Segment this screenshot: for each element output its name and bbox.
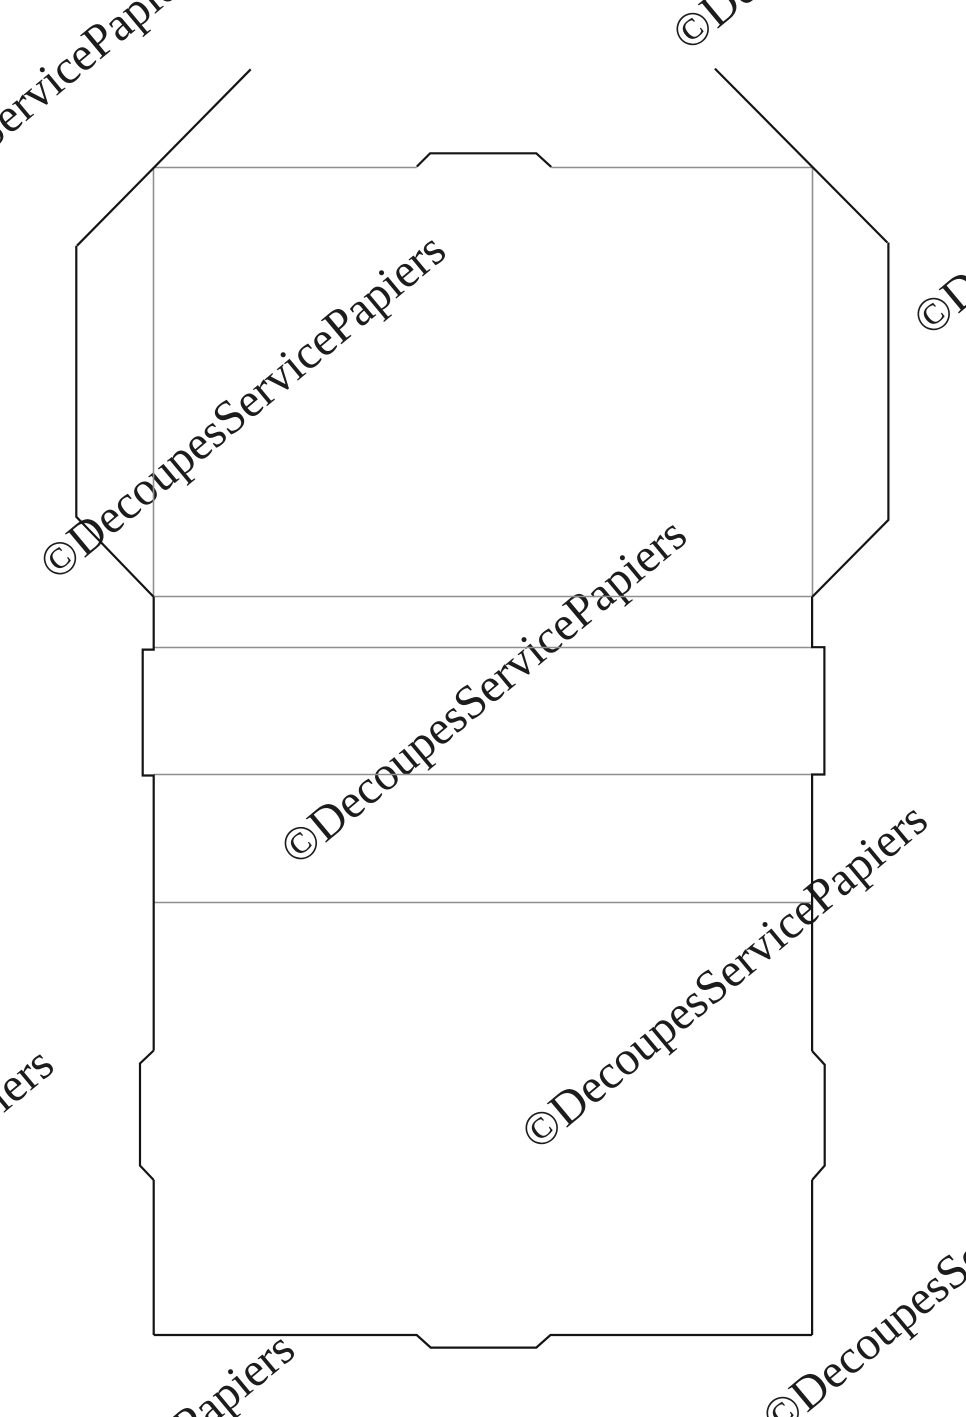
svg-text:©DecoupesServicePapiers: ©DecoupesServicePapiers xyxy=(662,0,966,61)
svg-text:©DecoupesServicePapiers: ©DecoupesServicePapiers xyxy=(511,792,937,1160)
svg-text:©DecoupesServicePapiers: ©DecoupesServicePapiers xyxy=(903,0,966,346)
svg-text:©DecoupesServicePapiers: ©DecoupesServicePapiers xyxy=(0,0,215,306)
svg-text:©DecoupesServicePapiers: ©DecoupesServicePapiers xyxy=(752,1077,966,1417)
svg-text:©DecoupesServicePapiers: ©DecoupesServicePapiers xyxy=(270,508,696,876)
svg-text:©DecoupesServicePapiers: ©DecoupesServicePapiers xyxy=(0,1037,64,1405)
